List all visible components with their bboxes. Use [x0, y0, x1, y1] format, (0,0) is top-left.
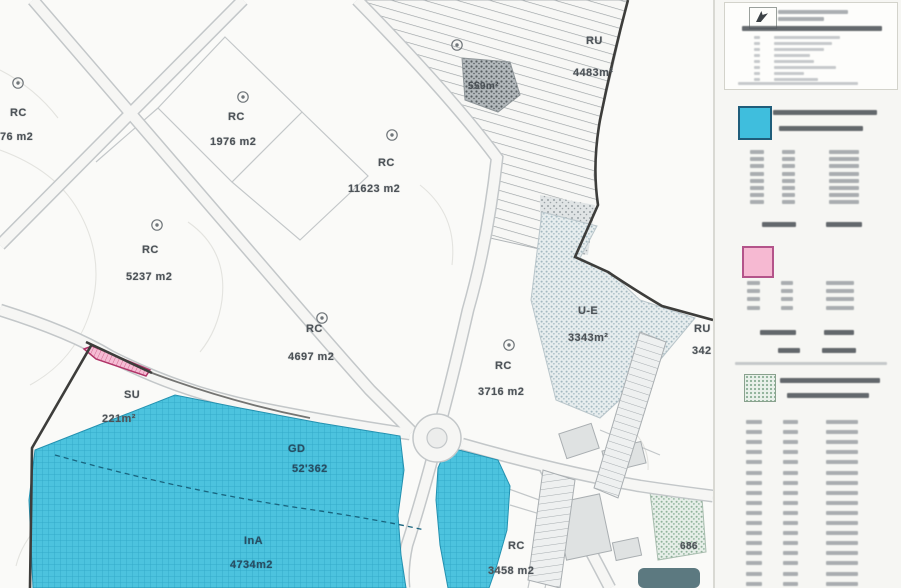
- stipple-parcel-ue: [531, 212, 695, 418]
- legend-text-bar: [774, 48, 824, 51]
- legend-text-bar: [774, 42, 832, 45]
- legend-text-bar: [783, 491, 798, 495]
- legend-text-bar: [782, 179, 795, 183]
- legend-text-bar: [783, 551, 798, 555]
- map-drawing: [0, 0, 713, 588]
- legend-text-bar: [750, 150, 764, 154]
- legend-text-bar: [783, 541, 798, 545]
- legend-text-bar: [779, 126, 863, 131]
- legend-text-bar: [826, 572, 858, 576]
- legend-swatch-green-stipple: [744, 374, 776, 402]
- legend-text-bar: [782, 157, 795, 161]
- parcel-code: RC: [228, 112, 245, 123]
- legend-text-bar: [760, 330, 796, 335]
- parcel-area: 221m²: [102, 414, 136, 425]
- parcel-area: 559m²: [468, 82, 499, 92]
- legend-text-bar: [746, 460, 762, 464]
- legend-text-bar: [778, 348, 800, 353]
- legend-text-bar: [826, 471, 858, 475]
- parcel-code: RU: [694, 324, 711, 335]
- legend-text-bar: [746, 491, 762, 495]
- legend-text-bar: [781, 289, 793, 293]
- legend-text-bar: [750, 200, 764, 204]
- legend-text-bar: [747, 281, 760, 285]
- pink-parcel-sliver: [84, 346, 150, 376]
- legend-text-bar: [783, 501, 798, 505]
- legend-text-bar: [774, 78, 818, 81]
- legend-text-bar: [746, 572, 762, 576]
- legend-text-bar: [783, 430, 798, 434]
- parcel-code: GD: [288, 444, 305, 455]
- parcel-code: RC: [10, 108, 27, 119]
- legend-text-bar: [826, 306, 854, 310]
- legend-text-bar: [735, 362, 887, 365]
- legend-text-bar: [826, 511, 858, 515]
- legend-text-bar: [826, 481, 858, 485]
- parcel-area: 3458 m2: [488, 566, 534, 577]
- legend-text-bar: [762, 222, 796, 227]
- legend-text-bar: [826, 297, 854, 301]
- legend-text-bar: [746, 531, 762, 535]
- legend-swatch-cyan: [738, 106, 772, 140]
- legend-text-bar: [750, 186, 764, 190]
- parcel-code: RC: [378, 158, 395, 169]
- legend-text-bar: [782, 164, 795, 168]
- legend-text-bar: [783, 481, 798, 485]
- legend-text-bar: [783, 561, 798, 565]
- lot-strip-south: [528, 470, 575, 588]
- legend-text-bar: [774, 66, 836, 69]
- parcel-code: RU: [586, 36, 603, 47]
- legend-text-bar: [750, 157, 764, 161]
- legend-text-bar: [826, 491, 858, 495]
- legend-text-bar: [754, 36, 760, 39]
- legend-text-bar: [754, 66, 760, 69]
- legend-text-bar: [783, 511, 798, 515]
- legend-text-bar: [747, 306, 760, 310]
- legend-text-bar: [826, 561, 858, 565]
- legend-text-bar: [782, 200, 795, 204]
- map-canvas: RC 76 m2 RC 1976 m2 RC 5237 m2 RC 11623 …: [0, 0, 713, 588]
- legend-text-bar: [746, 501, 762, 505]
- legend-text-bar: [783, 420, 798, 424]
- legend-text-bar: [829, 186, 859, 190]
- legend-text-bar: [826, 430, 858, 434]
- legend-text-bar: [773, 110, 877, 115]
- legend-text-bar: [754, 54, 760, 57]
- legend-text-bar: [754, 78, 760, 81]
- legend-text-bar: [826, 521, 858, 525]
- legend-text-bar: [750, 164, 764, 168]
- legend-text-bar: [826, 460, 858, 464]
- legend-text-bar: [822, 348, 856, 353]
- legend-text-bar: [787, 393, 869, 398]
- legend-text-bar: [746, 471, 762, 475]
- legend-text-bar: [746, 450, 762, 454]
- parcel-area: 52'362: [292, 464, 328, 475]
- legend-text-bar: [746, 430, 762, 434]
- legend-text-bar: [738, 82, 858, 85]
- legend-text-bar: [778, 17, 824, 21]
- legend-text-bar: [746, 551, 762, 555]
- legend-text-bar: [824, 330, 854, 335]
- legend-text-bar: [746, 582, 762, 586]
- legend-swatch-pink: [742, 246, 774, 278]
- parcel-area: 5237 m2: [126, 272, 172, 283]
- legend-text-bar: [781, 306, 793, 310]
- legend-text-bar: [780, 378, 880, 383]
- parcel-code: InA: [244, 536, 263, 547]
- legend-text-bar: [750, 172, 764, 176]
- roundabout: [413, 414, 461, 462]
- legend-text-bar: [826, 440, 858, 444]
- parcel-area: 4734m2: [230, 560, 273, 571]
- legend-text-bar: [742, 26, 882, 31]
- legend-text-bar: [826, 222, 862, 227]
- legend-text-bar: [783, 471, 798, 475]
- legend-text-bar: [826, 541, 858, 545]
- legend-text-bar: [782, 172, 795, 176]
- parcel-area: 342: [692, 346, 712, 357]
- legend-text-bar: [750, 193, 764, 197]
- legend-text-bar: [826, 582, 858, 586]
- legend-text-bar: [783, 572, 798, 576]
- legend-text-bar: [829, 157, 859, 161]
- legend-text-bar: [783, 582, 798, 586]
- legend-text-bar: [829, 200, 859, 204]
- legend-text-bar: [826, 420, 858, 424]
- legend-text-bar: [826, 551, 858, 555]
- parcel-area: 3716 m2: [478, 387, 524, 398]
- zoning-plan-scan: RC 76 m2 RC 1976 m2 RC 5237 m2 RC 11623 …: [0, 0, 901, 588]
- parcel-area: 3343m²: [568, 333, 608, 344]
- legend-text-bar: [746, 511, 762, 515]
- legend-text-bar: [782, 193, 795, 197]
- parcel-area: 1976 m2: [210, 137, 256, 148]
- parcel-code: U-E: [578, 306, 598, 317]
- legend-text-bar: [781, 297, 793, 301]
- plan-info-box: [724, 2, 898, 90]
- legend-text-bar: [750, 179, 764, 183]
- legend-text-bar: [754, 72, 760, 75]
- legend-text-bar: [829, 164, 859, 168]
- legend-text-bar: [774, 54, 810, 57]
- legend-text-bar: [829, 179, 859, 183]
- legend-text-bar: [783, 440, 798, 444]
- legend-text-bar: [783, 521, 798, 525]
- legend-text-bar: [826, 289, 854, 293]
- legend-text-bar: [774, 60, 814, 63]
- legend-text-bar: [754, 48, 760, 51]
- parcel-code: SU: [124, 390, 140, 401]
- legend-text-bar: [778, 10, 848, 14]
- parcel-code: RC: [508, 541, 525, 552]
- legend-text-bar: [782, 186, 795, 190]
- legend-text-bar: [829, 193, 859, 197]
- parcel-code: RC: [142, 245, 159, 256]
- legend-text-bar: [781, 281, 793, 285]
- legend-text-bar: [746, 561, 762, 565]
- legend-text-bar: [746, 440, 762, 444]
- parcel-area: 4483m²: [573, 68, 613, 79]
- parcel-area: 686: [680, 542, 698, 552]
- legend-panel: [713, 0, 901, 588]
- legend-text-bar: [746, 420, 762, 424]
- legend-text-bar: [826, 281, 854, 285]
- legend-text-bar: [746, 541, 762, 545]
- legend-text-bar: [747, 289, 760, 293]
- legend-text-bar: [782, 150, 795, 154]
- teal-patch: [638, 568, 700, 588]
- legend-text-bar: [829, 150, 859, 154]
- legend-text-bar: [826, 450, 858, 454]
- legend-text-bar: [829, 172, 859, 176]
- parcel-code: RC: [306, 324, 323, 335]
- legend-text-bar: [774, 72, 804, 75]
- legend-text-bar: [754, 42, 760, 45]
- legend-text-bar: [746, 521, 762, 525]
- legend-text-bar: [746, 481, 762, 485]
- legend-text-bar: [826, 501, 858, 505]
- legend-text-bar: [774, 36, 840, 39]
- legend-text-bar: [747, 297, 760, 301]
- legend-text-bar: [826, 531, 858, 535]
- parcel-area: 4697 m2: [288, 352, 334, 363]
- parcel-code: RC: [495, 361, 512, 372]
- legend-text-bar: [783, 450, 798, 454]
- legend-text-bar: [783, 531, 798, 535]
- legend-text-bar: [754, 60, 760, 63]
- parcel-area: 76 m2: [0, 132, 33, 143]
- legend-text-bar: [783, 460, 798, 464]
- parcel-area: 11623 m2: [348, 184, 400, 195]
